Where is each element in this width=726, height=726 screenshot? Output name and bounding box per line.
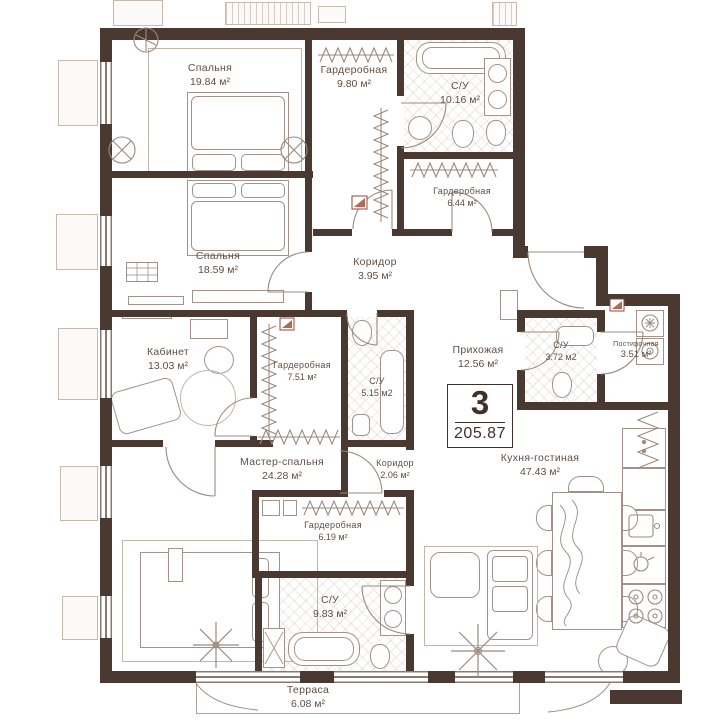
rooms-count: 3 [448,385,512,421]
room-label-bathroom-3-72: С/У 3.72 м2 [545,340,576,363]
room-label-wardrobe-9-80: Гардеробная 9.80 м² [321,64,388,91]
room-label-wardrobe-7-51: Гардеробная 7.51 м² [273,360,331,383]
room-name: Гардеробная [321,64,388,78]
room-name: Спальня [196,250,240,264]
room-area: 12.56 м² [452,358,503,372]
room-label-kitchen-living: Кухня-гостиная 47.43 м² [501,452,579,479]
room-area: 2.06 м² [376,470,414,482]
apartment-info-box: 3 205.87 [447,384,513,448]
room-area: 47.43 м² [501,466,579,480]
room-label-study: Кабинет 13.03 м² [147,346,189,373]
room-name: Терраса [287,684,329,698]
room-label-bathroom-5-15: С/У 5.15 м2 [361,376,392,399]
room-area: 9.83 м² [313,608,347,622]
room-label-bedroom2: Спальня 18.59 м² [196,250,240,277]
room-area: 10.16 м² [440,94,480,108]
room-label-bathroom-10-16: С/У 10.16 м² [440,80,480,107]
room-name: С/У [313,594,347,608]
floor-plan: Спальня 19.84 м² Гардеробная 9.80 м² С/У… [0,0,726,726]
room-name: Коридор [376,458,414,470]
room-label-wardrobe-6-19: Гардеробная 6.19 м² [304,520,362,543]
room-name: Гардеробная [273,360,331,372]
room-name: Прихожая [452,344,503,358]
room-label-entry-hall: Прихожая 12.56 м² [452,344,503,371]
room-name: Кухня-гостиная [501,452,579,466]
room-name: Мастер-спальня [240,456,324,470]
room-area: 3.95 м² [353,270,397,284]
room-area: 6.44 м² [433,198,491,210]
room-area: 3.72 м2 [545,352,576,364]
room-label-wardrobe-6-44: Гардеробная 6.44 м² [433,186,491,209]
total-area: 205.87 [448,425,512,443]
doors-and-symbols-layer [0,0,726,726]
room-name: Спальня [188,62,232,76]
room-area: 7.51 м² [273,372,331,384]
room-area: 6.19 м² [304,532,362,544]
room-name: С/У [440,80,480,94]
room-area: 3.51 м² [613,349,659,361]
room-name: Гардеробная [433,186,491,198]
room-area: 19.84 м² [188,76,232,90]
room-area: 24.28 м² [240,470,324,484]
room-name: С/У [545,340,576,352]
room-label-laundry: Постирочная 3.51 м² [613,340,659,361]
room-label-bedroom1: Спальня 19.84 м² [188,62,232,89]
room-name: Постирочная [613,340,659,349]
room-area: 6.08 м² [287,698,329,712]
info-box-divider [455,422,505,423]
room-name: Коридор [353,256,397,270]
room-label-terrace: Терраса 6.08 м² [287,684,329,711]
room-area: 18.59 м² [196,264,240,278]
room-name: Гардеробная [304,520,362,532]
room-label-bathroom-9-83: С/У 9.83 м² [313,594,347,621]
room-label-corridor-3-95: Коридор 3.95 м² [353,256,397,283]
room-area: 5.15 м2 [361,388,392,400]
room-label-master-bedroom: Мастер-спальня 24.28 м² [240,456,324,483]
room-name: С/У [361,376,392,388]
room-name: Кабинет [147,346,189,360]
room-area: 13.03 м² [147,360,189,374]
room-area: 9.80 м² [321,78,388,92]
room-label-corridor-2-06: Коридор 2.06 м² [376,458,414,481]
